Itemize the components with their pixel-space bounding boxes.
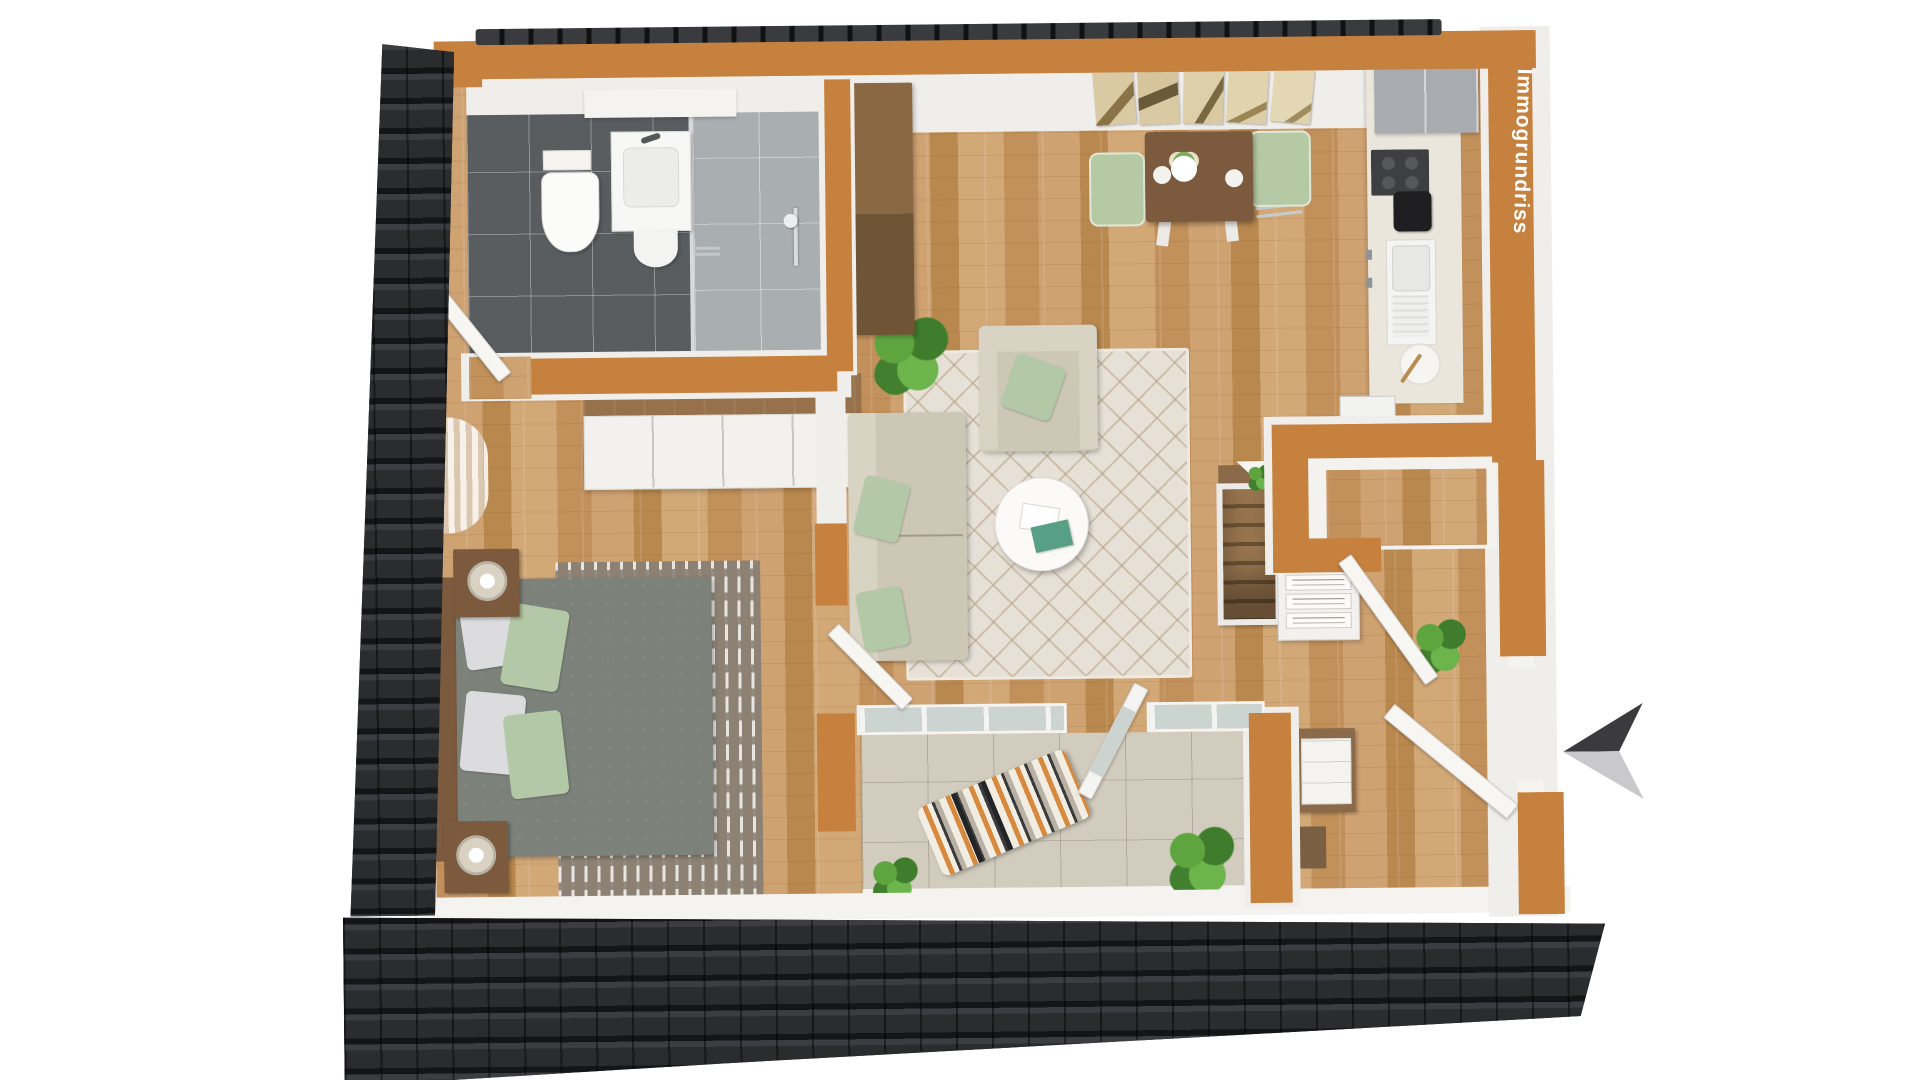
table-plate	[1225, 169, 1243, 187]
coffee-machine	[1393, 191, 1431, 231]
watermark-label: Immogrundriss	[1489, 68, 1535, 299]
tall-cabinet	[846, 83, 915, 336]
entry-door-frame	[1517, 780, 1543, 792]
divider-wall-pier-1	[815, 523, 848, 605]
entry-door-frame	[1508, 656, 1534, 668]
right-wall-lower	[1518, 792, 1565, 914]
nightstand-lamp-2	[456, 835, 496, 875]
balcony-glazing-left	[857, 703, 1067, 735]
wall-art	[1094, 68, 1313, 124]
hall-bench-cushion	[1301, 738, 1352, 805]
floorplan-canvas: Immogrundriss	[0, 0, 1920, 1080]
divider-wall-pier-2	[817, 713, 856, 831]
storage-wall-stub	[1273, 538, 1381, 573]
bed-pillow-green-2	[503, 710, 570, 800]
wall-art-panel	[1226, 68, 1270, 124]
kitchen-sink-basin	[1392, 245, 1430, 291]
storage-wall-top	[1272, 422, 1516, 459]
floorplan-3d: Immogrundriss	[287, 9, 1658, 1080]
lounge-chair-bar	[980, 780, 1013, 850]
dresser-drawer	[1285, 574, 1351, 591]
bathroom-east-wall	[824, 79, 853, 371]
doormat	[1296, 826, 1326, 868]
kitchen-sink-drainboard	[1392, 295, 1428, 337]
wall-art-panel	[1269, 67, 1314, 125]
lounge-chair-bar	[951, 793, 984, 863]
table-plate	[1153, 166, 1171, 184]
balcony-east-wall	[1249, 713, 1293, 903]
right-wall-mid	[1498, 460, 1546, 656]
dresser-drawer	[1285, 593, 1351, 610]
shower-head-icon	[783, 214, 797, 228]
toilet-cistern	[543, 150, 591, 171]
toilet	[541, 172, 600, 253]
table-vase	[1171, 156, 1197, 182]
storage-floor	[1326, 469, 1487, 547]
shower-floor	[692, 109, 837, 356]
cooktop	[1371, 149, 1429, 196]
wall-art-panel	[1092, 69, 1137, 126]
armchair-backrest	[979, 325, 1097, 352]
kitchen-tall-unit	[1374, 67, 1479, 134]
dining-chair-right	[1249, 130, 1312, 207]
wall-art-panel	[1182, 69, 1224, 124]
drawer-handle-icon	[1366, 250, 1372, 260]
towel-rail-icon	[694, 247, 720, 250]
dining-chair-left	[1089, 152, 1146, 227]
sink-basin	[623, 147, 680, 208]
armchair-arm-left	[979, 350, 998, 450]
bathroom-south-wall	[531, 355, 837, 394]
dresser-drawer	[1286, 612, 1352, 629]
hall-dresser	[1277, 568, 1360, 641]
armchair-arm-right	[1079, 349, 1098, 449]
entrance-arrow-icon	[1563, 703, 1644, 800]
nightstand-lamp-1	[467, 561, 507, 601]
balcony-glazing-right	[1147, 701, 1265, 732]
bathroom-mirror-cabinet	[584, 88, 736, 118]
wall-art-panel	[1137, 69, 1180, 125]
